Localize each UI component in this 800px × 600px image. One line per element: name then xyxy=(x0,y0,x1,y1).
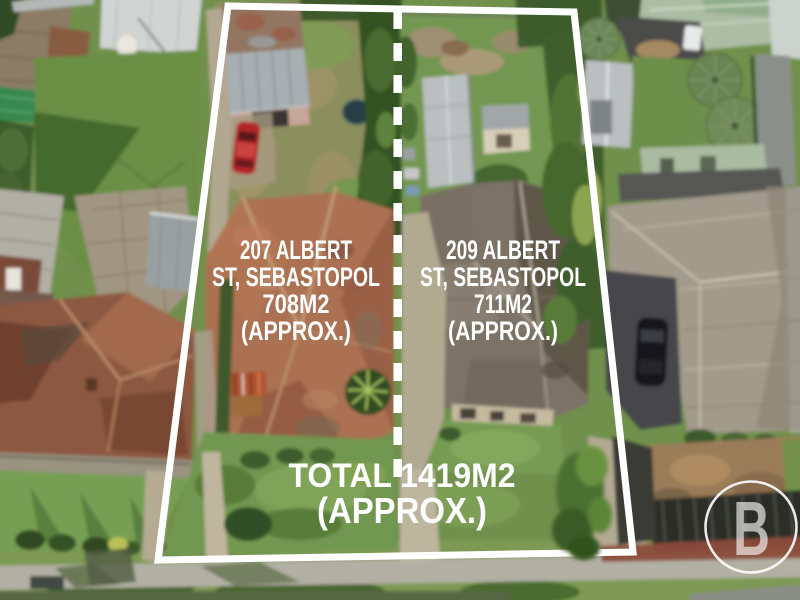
svg-text:(APPROX.): (APPROX.) xyxy=(448,316,558,346)
svg-text:207 ALBERT: 207 ALBERT xyxy=(240,235,352,265)
svg-text:ST, SEBASTOPOL: ST, SEBASTOPOL xyxy=(420,262,586,292)
svg-text:ST, SEBASTOPOL: ST, SEBASTOPOL xyxy=(212,262,380,292)
svg-text:708M2: 708M2 xyxy=(263,289,330,319)
svg-text:209 ALBERT: 209 ALBERT xyxy=(446,235,560,265)
svg-text:B: B xyxy=(733,486,770,572)
svg-text:(APPROX.): (APPROX.) xyxy=(317,490,487,531)
svg-text:711M2: 711M2 xyxy=(474,289,532,319)
svg-text:(APPROX.): (APPROX.) xyxy=(241,316,351,346)
